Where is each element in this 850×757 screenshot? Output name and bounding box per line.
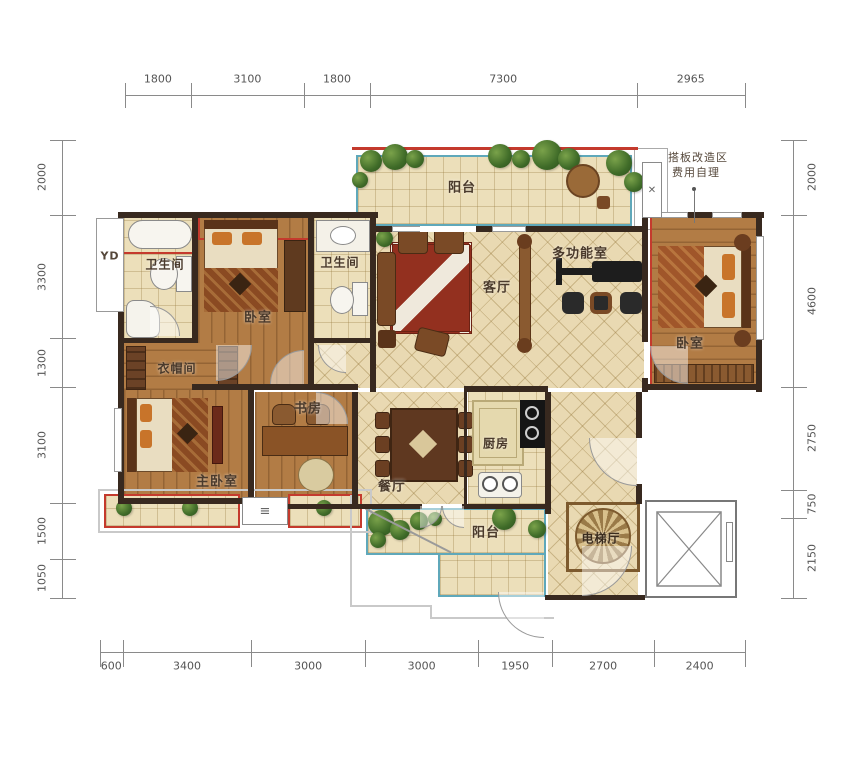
stool-icon [620,292,642,314]
wall [545,392,551,514]
room-label-master: 主卧室 [196,471,238,490]
dimension-label: 1800 [323,73,351,86]
dimension-tick [637,83,638,108]
duct-box [96,218,124,312]
dimension-tick [50,338,76,339]
gym-bench-icon [592,261,642,282]
gym-bench-icon [556,258,562,285]
room-label-bathroom-left: 卫生间 [145,256,184,273]
stool-icon [590,292,612,314]
wall [308,338,376,343]
round-table-icon [298,458,334,492]
wall [248,390,254,506]
wall [308,218,314,388]
wall [462,504,550,509]
room-label-cloakroom: 衣帽间 [157,360,196,377]
bathtub-icon [128,220,192,249]
pillow [140,430,152,448]
floor-plan: ✕ ≡ 阳台 卫生间 卧室 卫生间 客厅 多功能室 卧室 衣帽间 主卧室 书房 … [0,0,850,757]
side-table-icon [378,330,396,348]
window [658,212,688,218]
dimension-tick [478,640,479,667]
dimension-label: 2700 [589,660,617,673]
dimension-tick [745,640,746,667]
chair-icon [375,412,390,429]
column-clock-icon [519,242,531,344]
room-label-bedroom-top: 卧室 [244,307,272,326]
chair-icon [375,436,390,453]
wall [636,392,642,438]
basin-icon [330,226,356,245]
plant-icon [352,172,368,188]
room-label-living: 客厅 [483,277,511,296]
wall [370,218,376,392]
plant-icon [488,144,512,168]
wall [118,212,378,218]
round-table-icon [566,164,600,198]
dimension-label: 1500 [36,517,49,545]
exterior-step-line [350,495,352,607]
dimension-tick [370,83,371,108]
dimension-label: 750 [806,493,819,514]
dimension-tick [745,83,746,108]
dimension-tick [123,640,124,667]
wardrobe-icon [126,346,146,390]
plant-icon [376,230,393,247]
pillow [242,232,262,245]
pillow [212,232,232,245]
dimension-tick [50,598,76,599]
plant-icon [512,150,530,168]
wall [192,218,198,343]
carpet-icon [390,242,472,334]
plant-icon [370,532,386,548]
annotation-line2: 费用自理 [672,164,720,180]
dimension-tick [781,387,807,388]
window [114,408,122,472]
wall [464,392,467,506]
bed-headboard [742,246,751,328]
wall [192,384,358,390]
nightstand-icon [734,234,751,251]
wall [545,595,645,600]
wardrobe-icon [284,240,306,312]
dimension-label: 7300 [489,73,517,86]
dimension-line-bottom [100,652,745,653]
dimension-label: 2400 [686,660,714,673]
dimension-line-left [62,140,63,598]
dimension-label: 3000 [294,660,322,673]
plant-icon [606,150,632,176]
dimension-line-top [125,95,745,96]
wall [356,504,422,509]
dimension-tick [781,598,807,599]
dimension-label: 4600 [806,287,819,315]
sink-bowl [502,476,518,492]
column-knob [517,338,532,353]
window [712,212,742,218]
dimension-label: 1950 [501,660,529,673]
bed-headboard [204,220,278,229]
column-knob [517,234,532,249]
burner [525,426,539,440]
dimension-tick [781,140,807,141]
toilet-icon [352,282,368,316]
wall [464,386,548,392]
dimension-label: 2965 [677,73,705,86]
stool-icon [597,196,610,209]
sink-bowl [482,476,498,492]
vent-icon: ≡ [242,497,288,525]
annotation-line [694,191,695,223]
room-label-balcony-bottom: 阳台 [472,522,500,541]
pillow [722,292,735,318]
dimension-label: 3100 [233,73,261,86]
elevator-door [726,522,733,562]
dimension-tick [50,559,76,560]
dimension-label: 2000 [806,163,819,191]
dimension-tick [781,215,807,216]
dimension-line-right [793,140,794,598]
dimension-tick [251,640,252,667]
dimension-label: 2000 [36,163,49,191]
dimension-label: 2750 [806,424,819,452]
dimension-tick [304,83,305,108]
chair-icon [375,460,390,477]
plant-icon [382,144,408,170]
wall [636,484,642,504]
plant-icon [360,150,382,172]
ac-unit-icon: ✕ [642,162,662,218]
window [492,226,526,232]
wall [642,218,648,342]
room-label-bedroom-right: 卧室 [676,333,704,352]
exterior-step-line [350,605,432,607]
plant-icon [406,150,424,168]
door-icon [498,592,544,638]
annotation-line1: 搭板改造区 [668,149,728,165]
dimension-tick [781,490,807,491]
pillow [140,404,152,422]
room-label-multi: 多功能室 [552,243,608,262]
dimension-label: 3100 [36,431,49,459]
room-label-balcony-top: 阳台 [448,177,476,196]
dimension-label: 600 [101,660,122,673]
dimension-label: 2150 [806,544,819,572]
plant-icon [528,520,546,538]
toilet-icon [330,286,354,314]
room-label-bathroom-mid: 卫生间 [320,254,359,271]
elevator-icon [656,511,722,587]
chair-icon [272,404,296,425]
nightstand-icon [734,330,751,347]
window [756,236,764,340]
wall [352,392,358,506]
room-label-dining: 餐厅 [378,476,406,495]
entry-opening [637,438,642,484]
bed-headboard [127,398,136,472]
desk-icon [262,426,348,456]
stool-icon [562,292,584,314]
balcony-bottom-ext-floor [438,553,546,597]
pillow [722,254,735,280]
dimension-tick [50,387,76,388]
dimension-tick [781,518,807,519]
room-label-kitchen: 厨房 [483,435,509,452]
dimension-label: 1050 [36,564,49,592]
wall [644,384,762,390]
burner [525,406,539,420]
dimension-tick [191,83,192,108]
duct-label: YD [100,250,119,263]
dimension-tick [50,503,76,504]
dimension-tick [654,640,655,667]
dimension-label: 3300 [36,263,49,291]
bed-bench-icon [212,406,223,464]
dimension-tick [552,640,553,667]
room-label-study: 书房 [294,398,322,417]
window [420,226,476,232]
dimension-label: 1300 [36,349,49,377]
dimension-tick [50,140,76,141]
dimension-tick [50,215,76,216]
dimension-tick [365,640,366,667]
room-label-elevator-hall: 电梯厅 [581,530,620,547]
dimension-tick [125,83,126,108]
wall [118,338,198,343]
plant-icon [624,172,644,192]
wall [118,498,252,504]
dimension-label: 3400 [173,660,201,673]
sofa-icon [377,252,396,326]
dimension-label: 1800 [144,73,172,86]
dimension-label: 3000 [408,660,436,673]
